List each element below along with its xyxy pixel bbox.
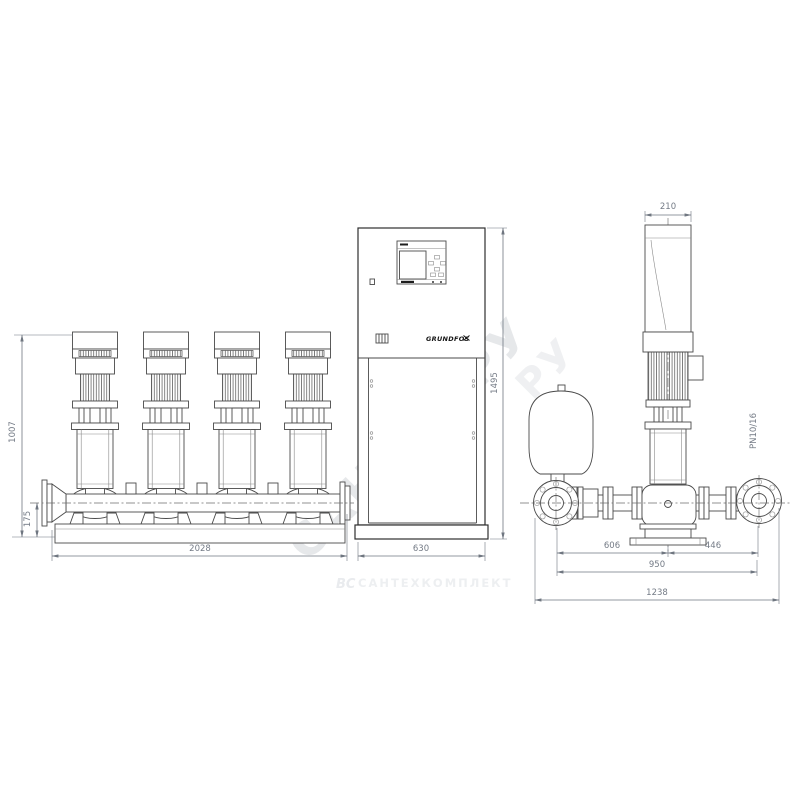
- dim-shroud-width: 210: [660, 202, 676, 212]
- terminal-box: [688, 356, 703, 380]
- membrane-tank: [529, 385, 593, 495]
- side-view: PN10/16 210 606 446 950 1238: [520, 202, 790, 604]
- pump-unit-1: [72, 332, 119, 489]
- dim-pump-height: 1007: [8, 421, 18, 443]
- grundfos-logo: GRUNDFOS: [426, 335, 470, 343]
- flange-pressure-rating: PN10/16: [749, 413, 759, 449]
- dim-left-span: 606: [604, 541, 620, 551]
- watermark-footer: ВС САНТЕХКОМПЛЕКТ: [336, 576, 512, 592]
- pump-unit-4: [285, 332, 332, 489]
- watermark-footer-text: САНТЕХКОМПЛЕКТ: [358, 576, 512, 590]
- base-frame: [55, 524, 345, 543]
- pump-unit-3: [214, 332, 261, 489]
- dim-cabinet-height: 1495: [490, 372, 500, 394]
- dim-skid-length: 2028: [189, 544, 211, 554]
- discharge-flange: [737, 479, 782, 524]
- pump-volute-side: [642, 485, 696, 526]
- watermark-footer-logo: ВС: [336, 577, 356, 592]
- dim-cabinet-width: 630: [413, 544, 429, 554]
- pump-unit-2: [143, 332, 190, 489]
- dim-flange-span: 950: [649, 560, 665, 570]
- dim-manifold-height: 175: [23, 511, 33, 527]
- cabinet-plinth: [355, 525, 488, 539]
- control-cabinet: GRUNDFOS: [355, 228, 488, 539]
- pump-feet: [70, 513, 333, 524]
- grundfos-logo-text: GRUNDFOS: [426, 335, 470, 343]
- dim-right-span: 446: [705, 541, 721, 551]
- pump-pedestal: [630, 524, 706, 545]
- booster-set-drawing: САНТЕХ.РУ РУ: [0, 0, 800, 800]
- dim-overall-depth: 1238: [646, 588, 668, 598]
- technical-drawing-page: САНТЕХ.РУ РУ: [0, 0, 800, 800]
- front-view: GRUNDFOS 1007 175 2028 630 1495: [8, 228, 507, 561]
